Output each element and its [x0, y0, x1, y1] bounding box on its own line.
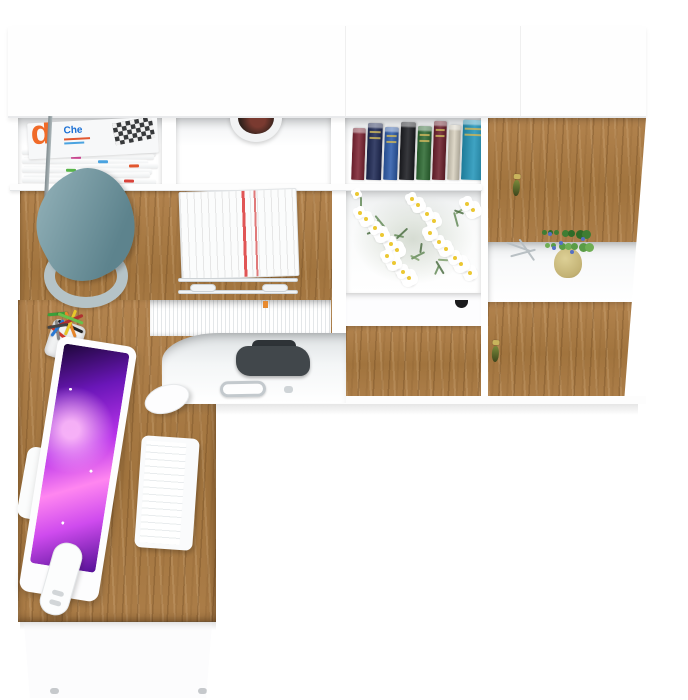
daisy-center	[444, 247, 448, 251]
floor-shadow	[150, 404, 638, 415]
plant-leaf	[568, 230, 575, 237]
book-spine	[366, 123, 383, 180]
cubby-books	[345, 118, 481, 184]
daisy-bouquet	[346, 185, 481, 285]
daisy-center	[465, 202, 469, 206]
pedestal-foot	[198, 688, 207, 694]
shelf-daisies	[346, 191, 481, 293]
daisy-center	[432, 219, 436, 223]
wood-drawer	[346, 326, 481, 396]
book-gilt-band	[420, 134, 430, 136]
daisy-center	[416, 203, 420, 207]
plant-flower	[548, 232, 552, 236]
book-gilt-band	[436, 129, 445, 131]
plant-leaves	[538, 230, 600, 282]
book-gilt-band	[369, 137, 380, 139]
keyboard	[134, 435, 200, 551]
daisy-flower	[352, 189, 361, 198]
book-spine	[399, 122, 416, 180]
book-spine	[383, 127, 399, 180]
book-gilt-band	[435, 135, 444, 137]
key-tassel	[512, 180, 520, 196]
plant-flower	[559, 241, 563, 245]
book-gilt-band	[386, 141, 396, 143]
letter-tray	[176, 190, 304, 296]
daisy-stem	[438, 259, 448, 262]
book-spine	[461, 120, 481, 181]
book-spine	[416, 126, 432, 180]
daisy-center	[468, 271, 472, 275]
plant-flower	[552, 246, 556, 250]
office-chair	[236, 346, 310, 376]
daisy-center	[355, 192, 359, 196]
daisy-center	[364, 217, 368, 221]
daisy-center	[401, 270, 405, 274]
pedestal-foot	[50, 688, 59, 694]
daisy-flower	[406, 193, 417, 204]
potted-plant	[538, 230, 600, 282]
desk-pedestal	[20, 622, 216, 698]
plant-flower	[570, 250, 574, 254]
door-key-upper	[510, 174, 522, 199]
stand-slot	[49, 599, 62, 607]
books-row	[345, 118, 481, 184]
cubby-flower-pot	[176, 118, 331, 184]
book-gilt-band	[419, 140, 429, 142]
daisy-flower	[381, 250, 393, 262]
door-key-lower	[489, 340, 500, 364]
daisy-center	[380, 233, 384, 237]
office-furniture-top-view: d Che	[0, 0, 688, 700]
daisy-center	[358, 211, 362, 215]
daisy-center	[410, 197, 414, 201]
desk-lamp	[28, 110, 148, 310]
book-gilt-band	[370, 131, 381, 133]
daisy-center	[385, 254, 389, 258]
keyboard-keys	[140, 440, 187, 545]
book-gilt-band	[464, 134, 481, 137]
plant-leaf	[554, 230, 559, 235]
book-spine	[447, 125, 461, 180]
document-stack	[179, 188, 300, 280]
daisy-flower	[354, 207, 365, 218]
panel-seam	[345, 26, 346, 116]
file-tabs	[263, 301, 329, 308]
white-drawer	[346, 293, 481, 326]
plant-flower	[581, 237, 585, 241]
daisy-stem	[360, 197, 362, 207]
daisy-center	[459, 262, 463, 266]
file-tab	[263, 301, 268, 308]
daisy-center	[373, 226, 377, 230]
wall-unit-top-panel	[8, 26, 646, 118]
hanging-files	[150, 300, 331, 336]
daisy-center	[425, 212, 429, 216]
daisy-stem	[434, 265, 440, 275]
book-gilt-band	[387, 135, 397, 137]
book-spine	[432, 121, 447, 180]
book-spine	[351, 128, 366, 180]
plant-leaf	[545, 243, 550, 248]
tray-wire	[178, 278, 298, 282]
daisy-center	[453, 256, 457, 260]
key-head	[513, 174, 520, 179]
book-gilt-band	[465, 128, 481, 131]
tray-leg	[190, 284, 216, 292]
drawer-handle-metal	[220, 381, 266, 398]
plant-leaf	[585, 243, 594, 252]
plant-leaf	[542, 230, 547, 235]
drawer-knob-silver	[284, 386, 293, 393]
daisy-center	[428, 231, 432, 235]
daisy-flower	[423, 226, 437, 240]
daisy-center	[389, 242, 393, 246]
key-head	[492, 340, 499, 345]
key-tassel	[491, 346, 499, 362]
stand-slot	[52, 589, 65, 597]
daisy-center	[471, 208, 475, 212]
lamp-shade	[17, 155, 155, 296]
daisy-center	[437, 240, 441, 244]
tray-leg	[262, 284, 288, 292]
daisy-center	[407, 276, 411, 280]
daisy-flower	[460, 197, 473, 210]
cabinet-door-lower	[488, 302, 646, 396]
daisy-center	[395, 248, 399, 252]
panel-seam	[520, 26, 521, 116]
daisy-center	[392, 261, 396, 265]
plant-leaf	[571, 243, 578, 250]
